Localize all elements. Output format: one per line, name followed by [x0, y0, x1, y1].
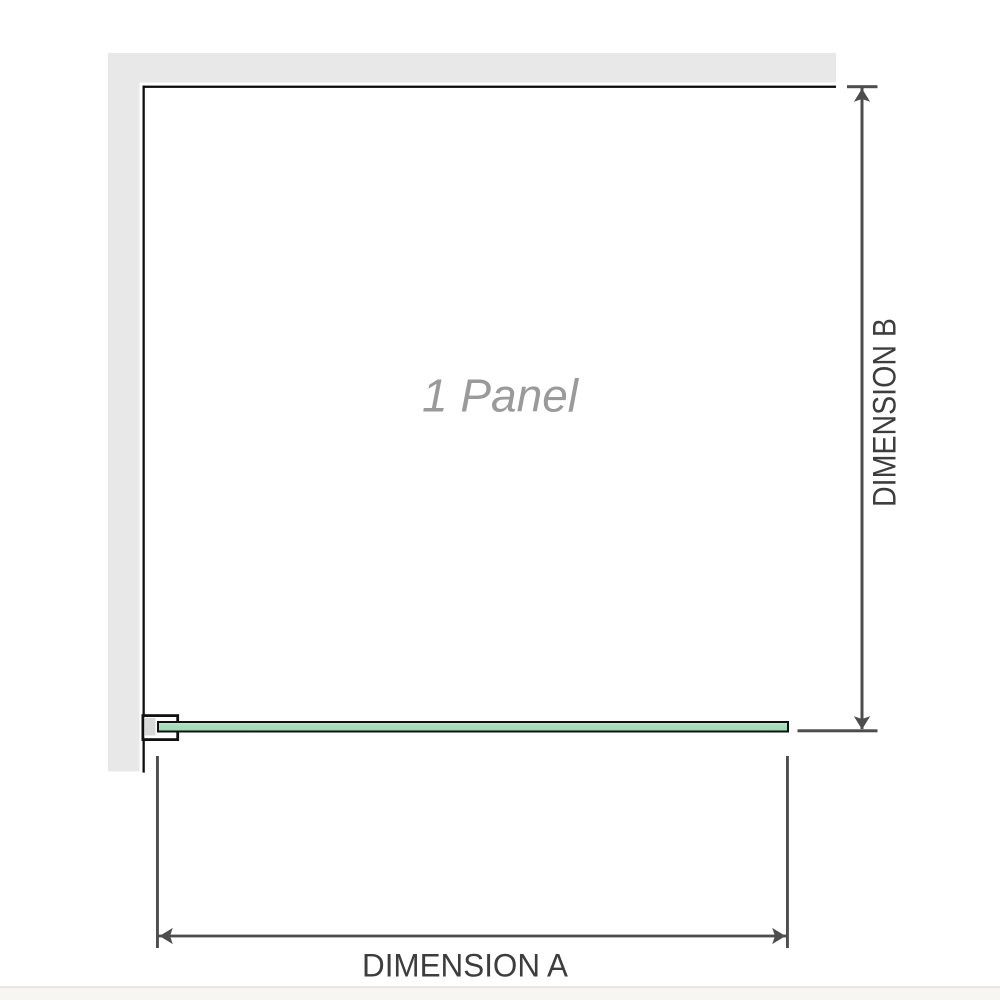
svg-text:1 Panel: 1 Panel — [422, 370, 580, 422]
svg-text:DIMENSION B: DIMENSION B — [866, 318, 902, 507]
svg-text:DIMENSION A: DIMENSION A — [362, 948, 569, 984]
